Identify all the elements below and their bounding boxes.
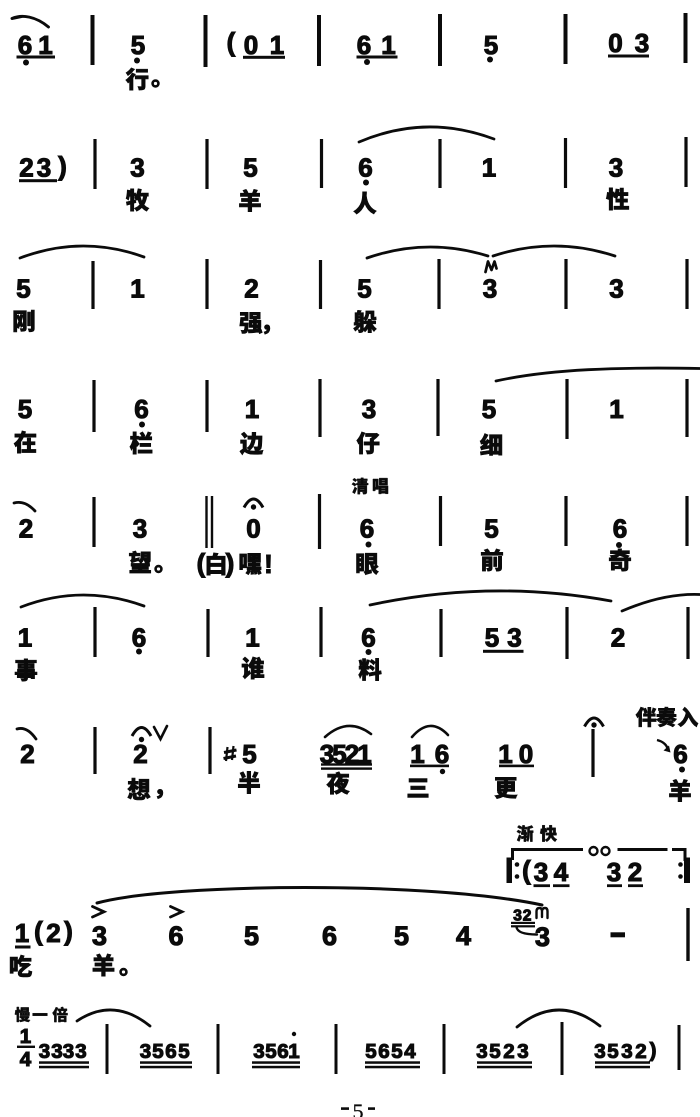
svg-text:6: 6 (165, 1040, 176, 1063)
svg-text:5: 5 (353, 1099, 364, 1117)
svg-text:3: 3 (37, 153, 51, 183)
svg-text:3: 3 (621, 1040, 632, 1063)
svg-text:6: 6 (168, 921, 183, 951)
svg-text:3: 3 (133, 514, 147, 544)
svg-text:3: 3 (609, 153, 623, 183)
svg-text:): ) (650, 1039, 657, 1062)
svg-text:5: 5 (485, 623, 499, 653)
svg-text:(: ( (522, 855, 531, 885)
svg-text:5: 5 (152, 1040, 163, 1063)
svg-text:): ) (64, 916, 73, 946)
svg-text:5: 5 (131, 30, 145, 60)
svg-text:6: 6 (613, 514, 627, 544)
svg-text:6: 6 (360, 514, 374, 544)
svg-text:1: 1 (245, 623, 259, 653)
svg-text:2: 2 (611, 623, 625, 653)
svg-text:2: 2 (244, 274, 258, 304)
svg-text:3: 3 (63, 1040, 74, 1063)
svg-text:3: 3 (594, 1040, 605, 1063)
svg-text:4: 4 (404, 1040, 416, 1063)
svg-text:): ) (226, 548, 235, 578)
svg-text:5: 5 (489, 1040, 500, 1063)
svg-text:1: 1 (18, 623, 32, 653)
svg-text:3: 3 (75, 1040, 86, 1063)
svg-text:1: 1 (20, 1025, 31, 1048)
svg-text:1: 1 (15, 918, 29, 948)
svg-text:1: 1 (288, 1040, 299, 1063)
svg-text:3: 3 (483, 274, 497, 304)
svg-text:0: 0 (519, 739, 533, 769)
svg-text:5: 5 (242, 739, 256, 769)
svg-text:3: 3 (609, 274, 623, 304)
svg-text:4: 4 (554, 857, 569, 887)
svg-text:6: 6 (134, 394, 148, 424)
svg-text:5: 5 (484, 514, 498, 544)
svg-text:!: ! (264, 549, 273, 579)
svg-text:6: 6 (435, 739, 449, 769)
svg-text:5: 5 (482, 394, 496, 424)
svg-text:3: 3 (635, 28, 649, 58)
svg-text:): ) (58, 151, 67, 181)
svg-text:3: 3 (534, 857, 548, 887)
svg-text:5: 5 (244, 921, 259, 951)
svg-text:5: 5 (484, 30, 498, 60)
svg-text:2: 2 (503, 1040, 514, 1063)
svg-text:(: ( (197, 548, 206, 578)
svg-text:5: 5 (178, 1040, 189, 1063)
svg-text:5: 5 (607, 1040, 618, 1063)
svg-text:3: 3 (39, 1040, 50, 1063)
svg-text:3: 3 (476, 1040, 487, 1063)
svg-text:6: 6 (277, 1040, 288, 1063)
svg-text:2: 2 (635, 1040, 646, 1063)
svg-text:1: 1 (270, 30, 284, 60)
svg-text:2: 2 (46, 918, 60, 948)
svg-text:3: 3 (92, 921, 107, 951)
svg-text:3: 3 (130, 153, 144, 183)
svg-text:5: 5 (265, 1040, 276, 1063)
svg-text:3: 3 (362, 394, 376, 424)
svg-text:2: 2 (19, 514, 33, 544)
svg-text:2: 2 (133, 739, 147, 769)
svg-text:6: 6 (673, 739, 687, 769)
svg-text:6: 6 (132, 623, 146, 653)
svg-text:5: 5 (16, 274, 30, 304)
svg-text:1: 1 (609, 394, 623, 424)
svg-text:3: 3 (51, 1040, 62, 1063)
svg-text:4: 4 (20, 1048, 32, 1071)
svg-text:3: 3 (140, 1040, 151, 1063)
svg-text:(: ( (34, 916, 43, 946)
svg-text:1: 1 (482, 153, 496, 183)
svg-text:0: 0 (608, 28, 622, 58)
svg-text:3: 3 (607, 857, 621, 887)
svg-text:5: 5 (18, 394, 32, 424)
svg-text:5: 5 (357, 274, 371, 304)
svg-text:3: 3 (535, 922, 550, 952)
svg-text:1: 1 (410, 739, 424, 769)
svg-text:6: 6 (322, 921, 337, 951)
svg-text:1: 1 (130, 274, 144, 304)
svg-text:5: 5 (394, 921, 409, 951)
svg-text:5: 5 (391, 1040, 402, 1063)
svg-text:5: 5 (365, 1040, 376, 1063)
svg-text:3: 3 (507, 623, 521, 653)
svg-text:2: 2 (628, 857, 642, 887)
svg-text:6: 6 (361, 623, 375, 653)
svg-text:5: 5 (243, 153, 257, 183)
svg-text:0: 0 (246, 514, 260, 544)
svg-text:1: 1 (245, 394, 259, 424)
svg-text:1: 1 (498, 739, 512, 769)
svg-text:3: 3 (517, 1040, 528, 1063)
svg-text:4: 4 (456, 921, 471, 951)
svg-text:2: 2 (19, 153, 33, 183)
svg-text:3: 3 (253, 1040, 264, 1063)
svg-text:6: 6 (378, 1040, 389, 1063)
svg-text:6: 6 (358, 153, 372, 183)
svg-text:(: ( (227, 27, 236, 57)
svg-text:0: 0 (244, 30, 258, 60)
svg-text:2: 2 (20, 739, 34, 769)
